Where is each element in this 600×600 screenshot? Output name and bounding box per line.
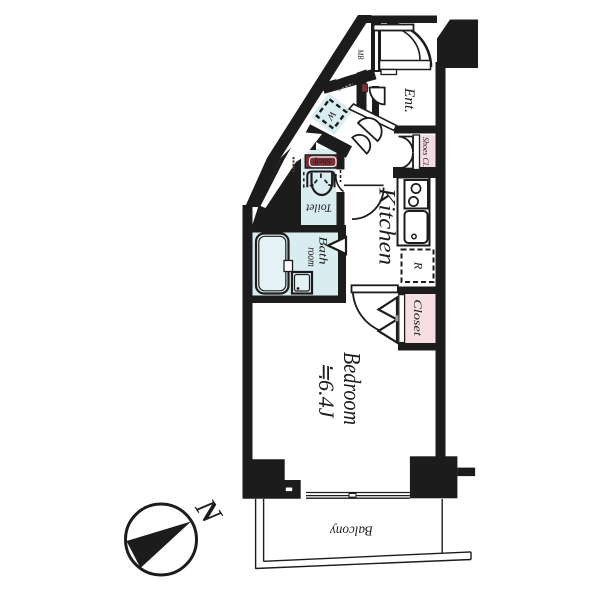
svg-text:room: room bbox=[305, 247, 319, 267]
svg-text:Ent.: Ent. bbox=[401, 87, 417, 113]
svg-text:≒6.4J: ≒6.4J bbox=[314, 362, 339, 419]
svg-text:MB: MB bbox=[356, 49, 365, 60]
svg-text:Kitchen: Kitchen bbox=[373, 187, 399, 265]
svg-text:Shelf: Shelf bbox=[313, 157, 332, 167]
svg-text:Closet: Closet bbox=[411, 299, 425, 336]
svg-text:R: R bbox=[411, 261, 425, 270]
svg-text:Bedroom: Bedroom bbox=[338, 352, 365, 425]
svg-text:Toilet: Toilet bbox=[305, 201, 332, 213]
svg-text:Balcony: Balcony bbox=[329, 523, 373, 538]
svg-text:Shoes Cl.: Shoes Cl. bbox=[421, 137, 430, 167]
